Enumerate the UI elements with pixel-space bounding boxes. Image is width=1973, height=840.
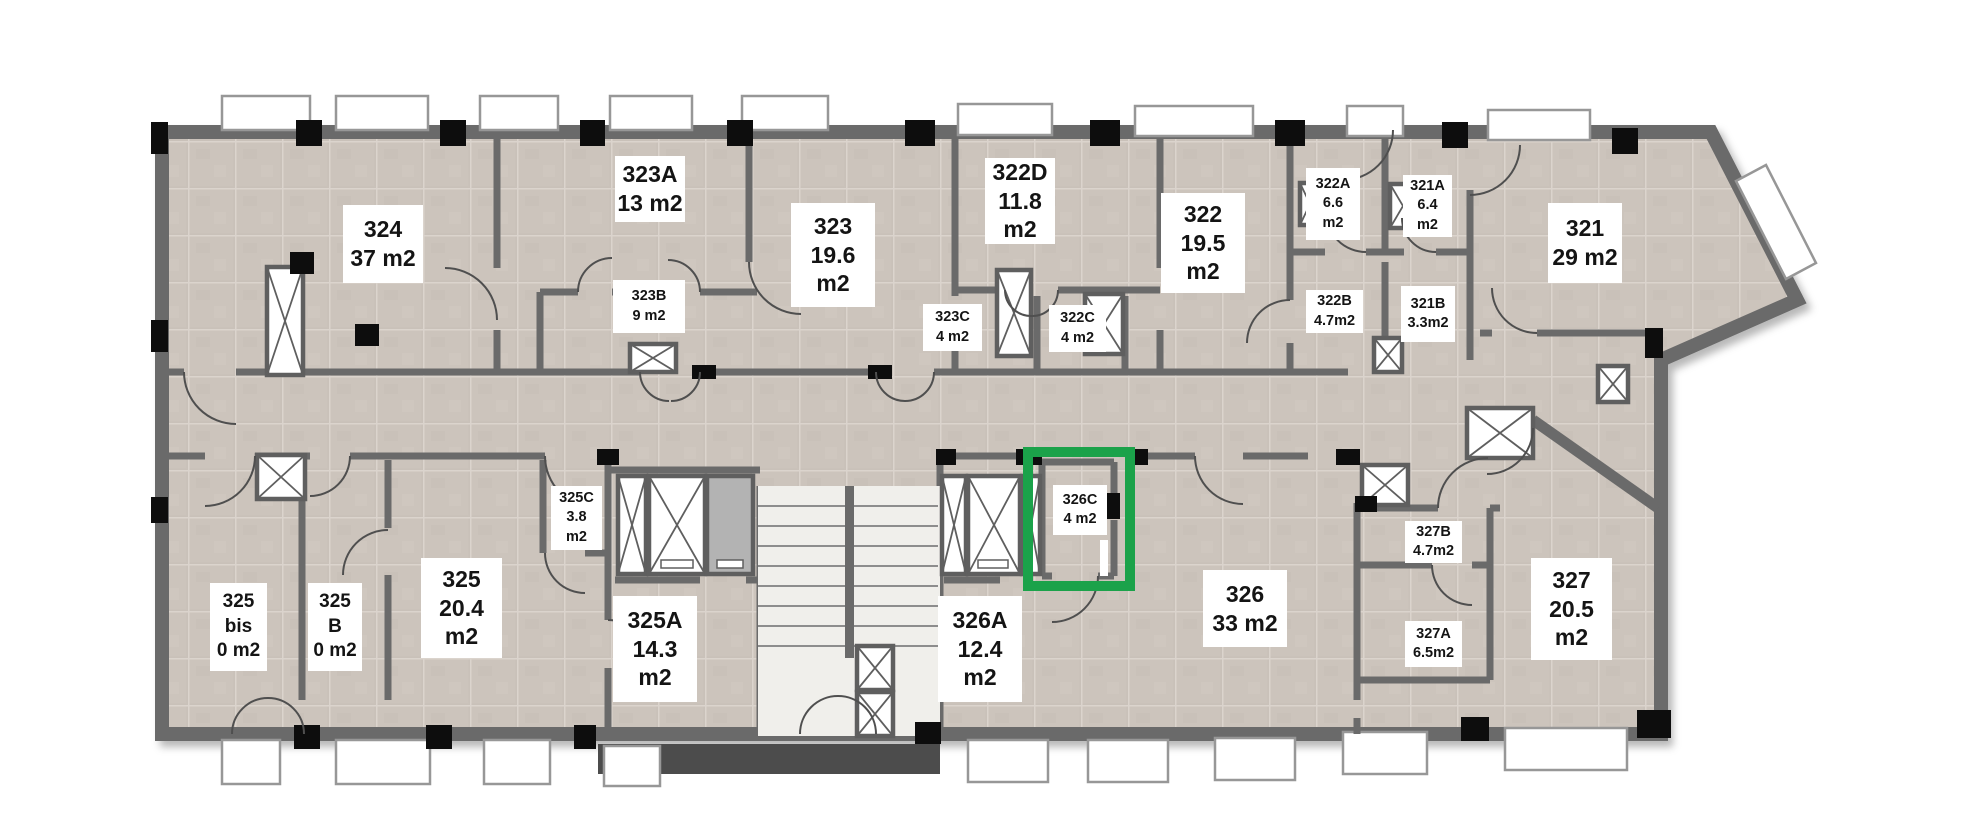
- room-label-325B[interactable]: 325B0 m2: [308, 583, 362, 671]
- room-label-322C[interactable]: 322C4 m2: [1049, 305, 1106, 352]
- room-label-325bis[interactable]: 325bis0 m2: [210, 583, 267, 671]
- room-label-324[interactable]: 32437 m2: [343, 205, 423, 283]
- floor-plan-drawing: [0, 0, 1973, 840]
- room-label-323A[interactable]: 323A13 m2: [615, 156, 685, 222]
- room-label-323[interactable]: 32319.6m2: [791, 203, 875, 307]
- room-label-325[interactable]: 32520.4m2: [421, 558, 502, 658]
- room-label-322B[interactable]: 322B4.7m2: [1306, 290, 1363, 333]
- room-label-322[interactable]: 32219.5m2: [1161, 193, 1245, 293]
- room-label-326C[interactable]: 326C4 m2: [1053, 485, 1107, 535]
- room-label-327[interactable]: 32720.5m2: [1531, 558, 1612, 660]
- room-label-327B[interactable]: 327B4.7m2: [1405, 521, 1462, 563]
- room-label-325A[interactable]: 325A14.3m2: [613, 596, 697, 702]
- room-label-323C[interactable]: 323C4 m2: [923, 304, 982, 351]
- room-label-325C[interactable]: 325C3.8m2: [551, 486, 602, 550]
- stair-facade-band: [598, 744, 940, 786]
- room-label-326A[interactable]: 326A12.4m2: [938, 596, 1022, 702]
- room-label-323B[interactable]: 323B9 m2: [613, 280, 685, 333]
- room-label-322D[interactable]: 322D11.8m2: [985, 158, 1055, 244]
- floor-plan-page: 32437 m2 323A13 m2 323B9 m2 32319.6m2 32…: [0, 0, 1973, 840]
- room-label-321[interactable]: 32129 m2: [1548, 203, 1622, 283]
- stair-stringer-wall: [845, 486, 854, 658]
- room-label-321B[interactable]: 321B3.3m2: [1401, 286, 1455, 342]
- room-label-322A[interactable]: 322A6.6m2: [1306, 168, 1360, 240]
- room-label-327A[interactable]: 327A6.5m2: [1405, 621, 1462, 667]
- room-label-326[interactable]: 32633 m2: [1203, 570, 1287, 647]
- room-label-321A[interactable]: 321A6.4m2: [1403, 175, 1452, 237]
